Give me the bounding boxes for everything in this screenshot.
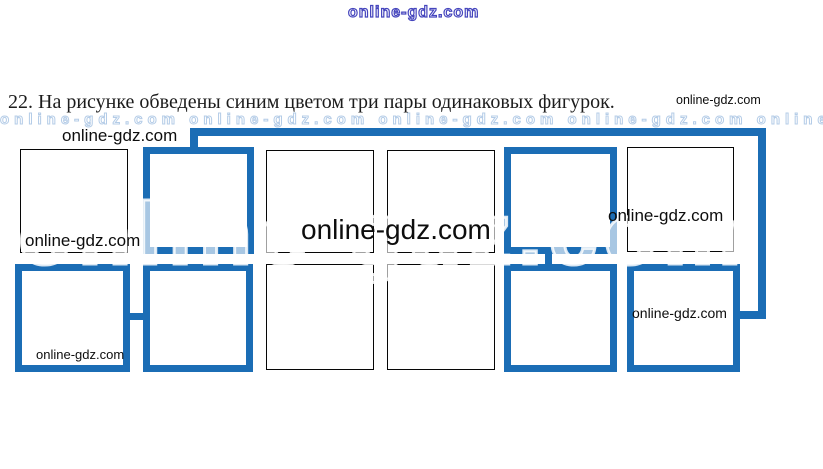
- connector-top-bar: [190, 128, 766, 136]
- watermark-in-box-r2c6: online-gdz.com: [632, 305, 727, 321]
- connector-top-stub: [190, 128, 198, 154]
- worksheet-page: online-gdz.com online-gdz.com online-gdz…: [0, 0, 823, 469]
- connector-right-bar: [758, 128, 766, 319]
- task-title: 22. На рисунке обведены синим цветом три…: [8, 91, 615, 114]
- watermark-in-box-r2c1: online-gdz.com: [36, 347, 124, 362]
- watermark-in-box-r1c1: online-gdz.com: [25, 231, 140, 251]
- connector-row2-c1-c2-link: [127, 313, 146, 320]
- watermark-right-row1: online-gdz.com: [608, 206, 723, 226]
- top-watermark: online-gdz.com: [348, 4, 479, 22]
- connector-right-hook: [736, 311, 766, 319]
- title-suffix-watermark: online-gdz.com: [676, 93, 761, 107]
- watermark-above-figure: online-gdz.com: [62, 126, 177, 146]
- watermark-center-large: online-gdz.com: [301, 214, 491, 246]
